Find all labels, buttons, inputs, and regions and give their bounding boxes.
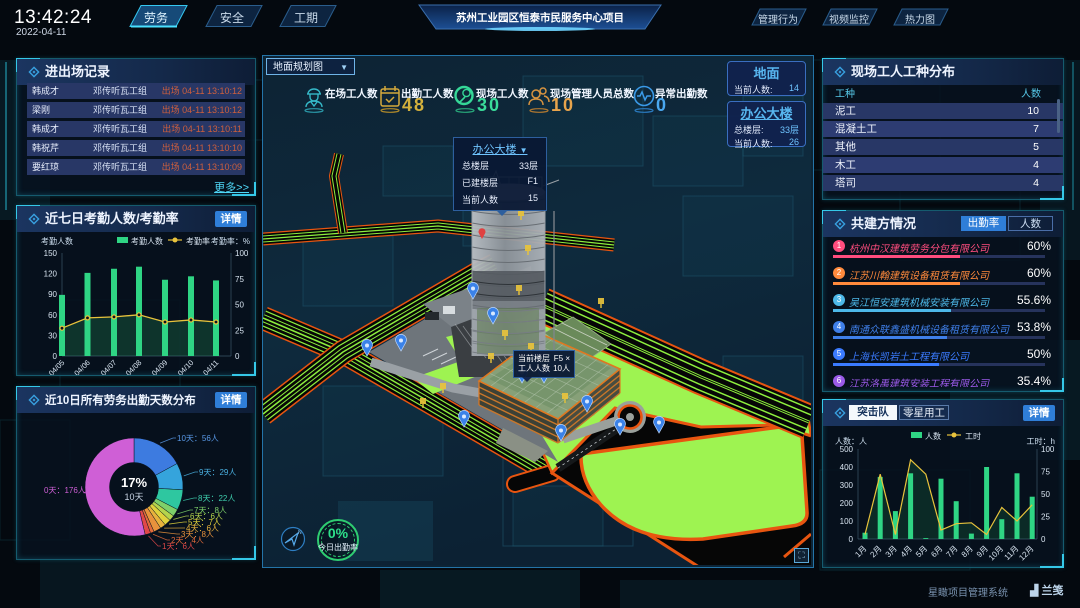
svg-text:0: 0	[235, 352, 240, 361]
svg-text:考勤率：%: 考勤率：%	[211, 236, 250, 246]
svg-text:5月: 5月	[914, 544, 929, 559]
svg-text:50: 50	[235, 301, 244, 310]
svg-text:2月: 2月	[868, 544, 883, 559]
svg-text:04/08: 04/08	[124, 358, 144, 375]
svg-text:75: 75	[1041, 468, 1050, 477]
svg-text:10天：56人: 10天：56人	[177, 434, 219, 443]
svg-text:7月: 7月	[944, 544, 959, 559]
svg-text:0: 0	[1041, 535, 1046, 544]
svg-text:25: 25	[235, 326, 244, 335]
svg-text:90: 90	[48, 290, 57, 299]
svg-text:60: 60	[48, 311, 57, 320]
svg-text:500: 500	[840, 445, 854, 454]
svg-text:150: 150	[44, 249, 58, 258]
svg-text:25: 25	[1041, 513, 1050, 522]
svg-text:04/10: 04/10	[176, 358, 196, 375]
svg-text:0天：176人: 0天：176人	[44, 486, 86, 495]
svg-text:1天：6人: 1天：6人	[162, 542, 195, 551]
svg-text:50: 50	[1041, 490, 1050, 499]
svg-text:N: N	[298, 530, 302, 536]
svg-text:10月: 10月	[987, 544, 1005, 562]
svg-text:200: 200	[840, 499, 854, 508]
svg-text:04/05: 04/05	[47, 358, 67, 375]
svg-text:8天：22人: 8天：22人	[198, 494, 235, 503]
svg-text:考勤率: 考勤率	[186, 236, 210, 246]
svg-text:04/09: 04/09	[150, 358, 170, 375]
svg-text:工时: 工时	[965, 431, 981, 441]
svg-text:0: 0	[849, 535, 854, 544]
svg-text:04/11: 04/11	[201, 358, 220, 375]
svg-text:120: 120	[44, 270, 58, 279]
svg-text:6月: 6月	[929, 544, 944, 559]
svg-text:考勤人数: 考勤人数	[41, 236, 73, 246]
svg-text:9天：29人: 9天：29人	[199, 468, 236, 477]
svg-text:0: 0	[53, 352, 58, 361]
svg-text:人数: 人数	[925, 431, 941, 441]
svg-text:4月: 4月	[899, 544, 914, 559]
svg-text:12月: 12月	[1017, 544, 1035, 562]
svg-text:3月: 3月	[884, 544, 899, 559]
svg-text:17%: 17%	[121, 475, 147, 490]
svg-text:8月: 8月	[960, 544, 975, 559]
svg-text:11月: 11月	[1003, 544, 1021, 562]
svg-text:300: 300	[840, 481, 854, 490]
svg-text:100: 100	[840, 517, 854, 526]
svg-text:1月: 1月	[853, 544, 868, 559]
svg-text:考勤人数: 考勤人数	[131, 236, 163, 246]
svg-text:04/07: 04/07	[99, 358, 119, 375]
svg-text:10天: 10天	[124, 492, 143, 502]
svg-text:100: 100	[1041, 445, 1055, 454]
svg-text:30: 30	[48, 331, 57, 340]
svg-text:04/06: 04/06	[72, 358, 92, 375]
svg-text:100: 100	[235, 249, 249, 258]
svg-text:400: 400	[840, 463, 854, 472]
svg-text:75: 75	[235, 275, 244, 284]
